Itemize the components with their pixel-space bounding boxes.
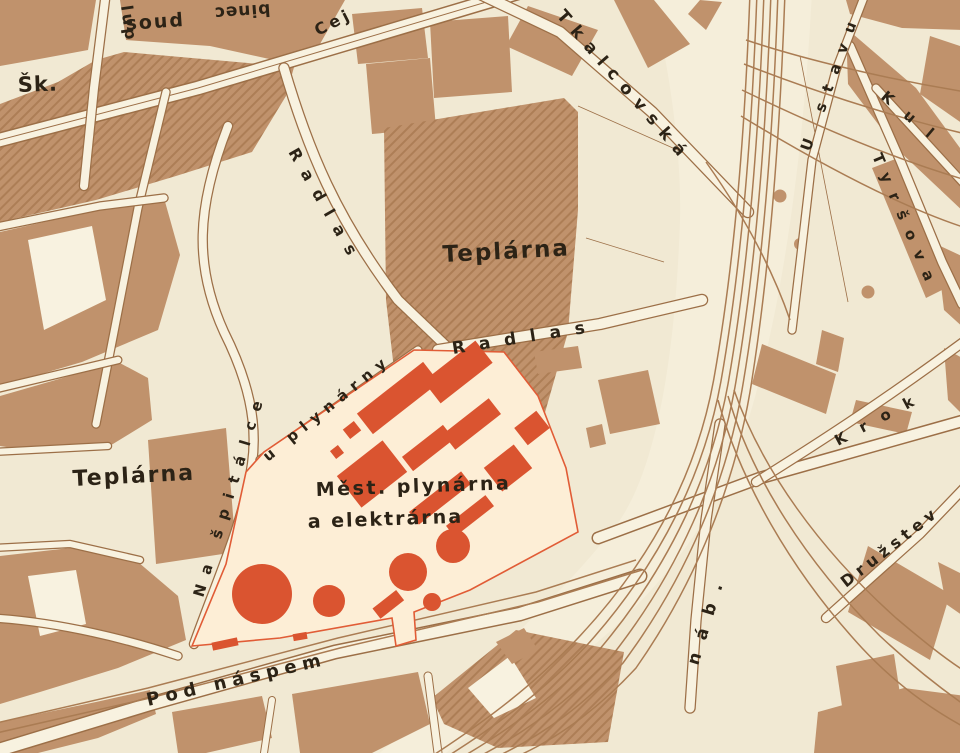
round-structure xyxy=(862,286,875,299)
map-viewport: Šk. lup soud binec Cej Tkalcovská U stav… xyxy=(0,0,960,753)
gas-holder xyxy=(313,585,345,617)
round-structure xyxy=(774,190,787,203)
gas-holder xyxy=(232,564,292,624)
map-canvas: Šk. lup soud binec Cej Tkalcovská U stav… xyxy=(0,0,960,753)
label-skola: Šk. xyxy=(17,71,58,97)
gas-holder xyxy=(436,529,470,563)
city-block xyxy=(430,16,512,98)
gas-holder xyxy=(389,553,427,591)
gas-holder xyxy=(423,593,441,611)
label-binec: binec xyxy=(213,0,271,23)
label-soud: soud xyxy=(125,9,186,35)
